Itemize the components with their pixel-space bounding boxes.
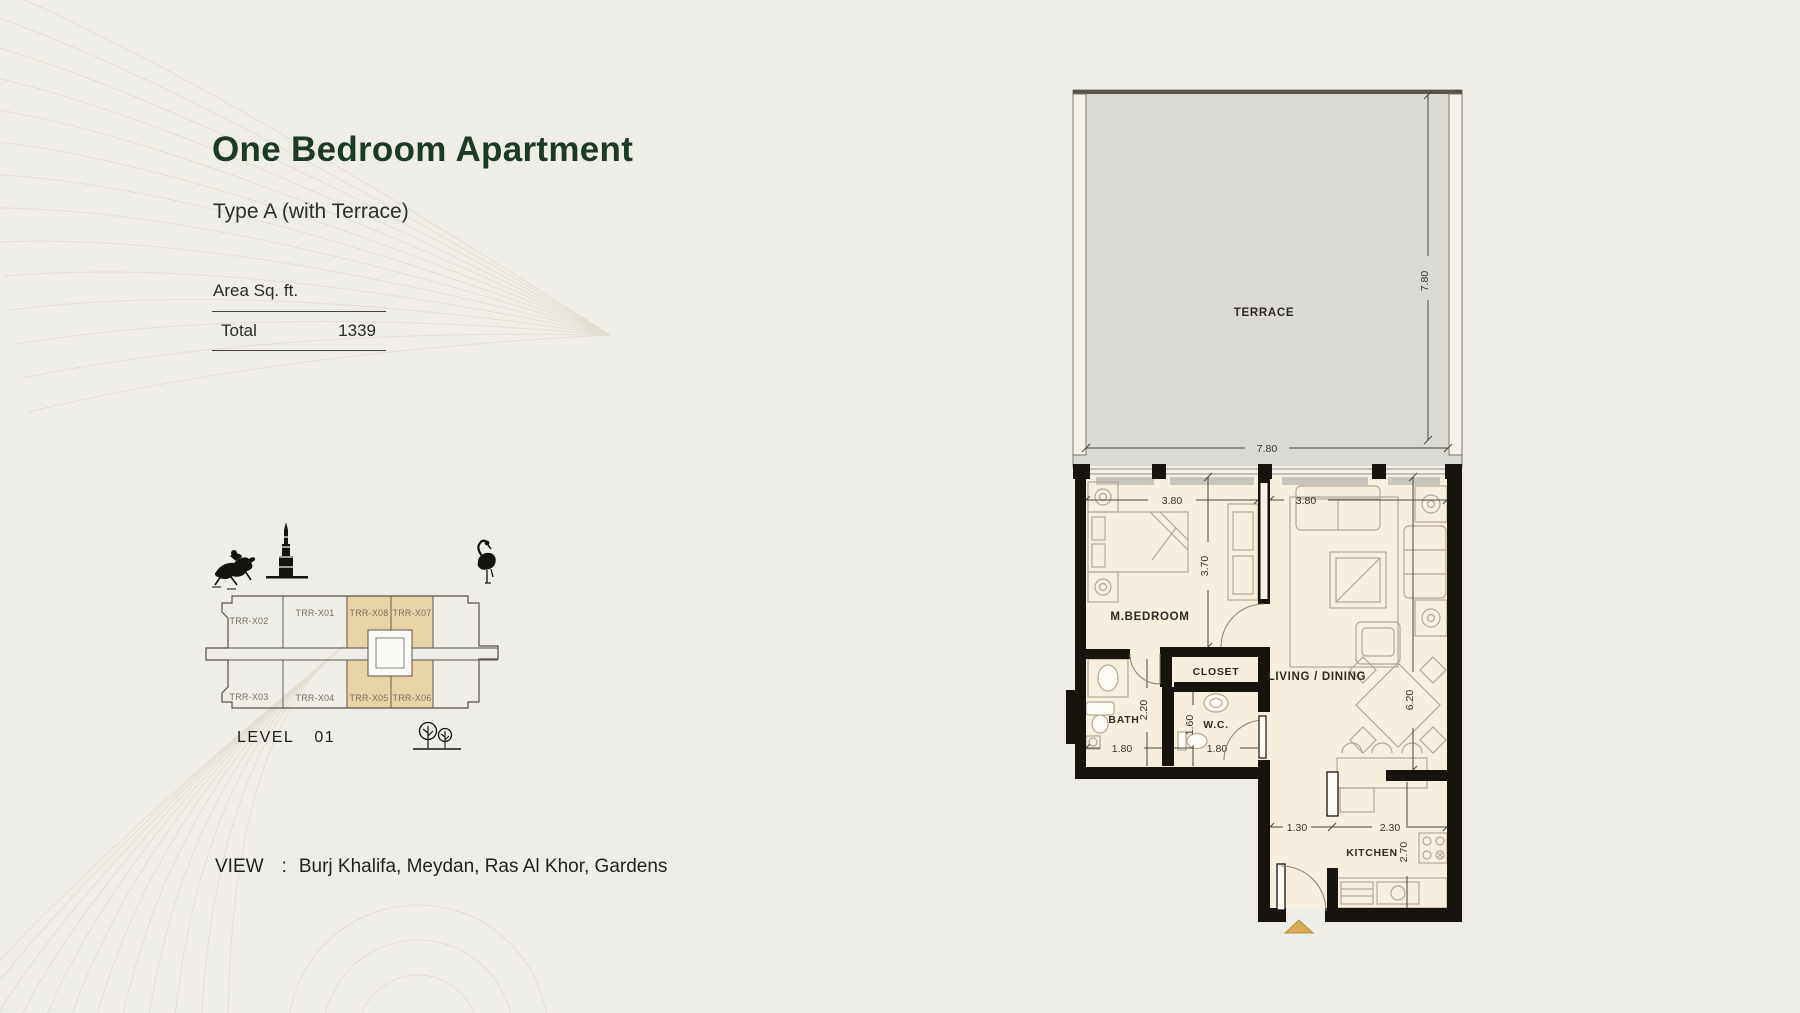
unit-label: TRR-X07 <box>393 608 432 618</box>
floor-right-block <box>1270 467 1447 908</box>
view-colon: : <box>282 856 287 877</box>
floorplan-page: TRR-X02 TRR-X01 TRR-X08 TRR-X07 TRR-X03 … <box>0 0 1800 1013</box>
dim-bedroom-depth: 3.70 <box>1199 556 1211 577</box>
leaf-decoration-bottom <box>0 645 345 1013</box>
level-value: 01 <box>314 729 335 746</box>
level-label: LEVEL <box>237 729 294 746</box>
dim-terrace-width: 7.80 <box>1257 443 1278 455</box>
area-row: Total 1339 <box>212 312 386 341</box>
unit-label: TRR-X04 <box>296 693 335 703</box>
rings-decoration <box>288 905 548 1013</box>
unit-label: TRR-X01 <box>296 608 335 618</box>
kitchen-door-leaf <box>1327 772 1338 816</box>
unit-label: TRR-X08 <box>350 608 389 618</box>
terrace-label: TERRACE <box>1234 307 1295 319</box>
pocket-door <box>1261 483 1268 599</box>
window-sill <box>1282 477 1368 485</box>
wc-door-leaf <box>1259 716 1266 758</box>
terrace-parapet <box>1073 90 1462 94</box>
flamingo-icon <box>478 541 496 583</box>
bedroom-label: M.BEDROOM <box>1110 611 1189 623</box>
unit-label: TRR-X03 <box>230 692 269 702</box>
gardens-trees-icon <box>413 723 461 750</box>
dim-living-depth: 6.20 <box>1404 690 1416 711</box>
table-rule <box>212 350 386 351</box>
area-row-value: 1339 <box>338 321 378 341</box>
dim-wc-depth: 1.60 <box>1184 715 1196 736</box>
dim-terrace-depth: 7.80 <box>1419 271 1431 292</box>
dim-bath-width: 1.80 <box>1112 743 1133 755</box>
level-indicator: LEVEL01 <box>237 729 335 747</box>
unit-label: TRR-X02 <box>230 616 269 626</box>
floor-plan: 7.80 7.80 3.80 3.80 3.70 6.20 2.20 <box>1066 90 1462 933</box>
unit-label: TRR-X06 <box>393 693 432 703</box>
wall-right <box>1447 467 1462 922</box>
view-value: Burj Khalifa, Meydan, Ras Al Khor, Garde… <box>299 856 668 877</box>
window-sill <box>1170 477 1254 485</box>
dim-kitchen-width: 2.30 <box>1380 822 1401 834</box>
closet-label: CLOSET <box>1193 666 1240 678</box>
bath-sink <box>1098 665 1118 691</box>
entry-door-leaf <box>1277 864 1285 910</box>
dim-bedroom-width: 3.80 <box>1162 495 1183 507</box>
window-sill <box>1388 477 1440 485</box>
dim-hall-width: 1.30 <box>1287 822 1308 834</box>
view-label: VIEW <box>215 856 264 877</box>
dim-kitchen-depth: 2.70 <box>1398 842 1410 863</box>
terrace-pilaster-right <box>1449 94 1462 455</box>
unit-label: TRR-X05 <box>350 693 389 703</box>
view-line: VIEW:Burj Khalifa, Meydan, Ras Al Khor, … <box>215 856 667 878</box>
bath-label: BATH <box>1108 714 1139 726</box>
area-table: Area Sq. ft. Total 1339 <box>212 281 386 351</box>
kitchen-label: KITCHEN <box>1346 847 1398 859</box>
area-row-label: Total <box>221 321 257 341</box>
page-subtitle: Type A (with Terrace) <box>213 200 409 224</box>
terrace-floor <box>1073 90 1462 467</box>
entry-marker <box>1285 920 1313 933</box>
dim-living-width: 3.80 <box>1296 495 1317 507</box>
key-plan: TRR-X02 TRR-X01 TRR-X08 TRR-X07 TRR-X03 … <box>206 522 498 749</box>
burj-khalifa-icon <box>266 522 308 579</box>
page-title: One Bedroom Apartment <box>212 130 633 170</box>
wc-label: W.C. <box>1203 719 1229 731</box>
key-plan-core <box>368 630 412 676</box>
window-sill <box>1096 477 1154 485</box>
wc-sink <box>1204 694 1228 712</box>
terrace-pilaster-left <box>1073 94 1086 455</box>
area-heading: Area Sq. ft. <box>212 281 386 301</box>
dim-bath-depth: 2.20 <box>1138 700 1150 721</box>
living-label: LIVING / DINING <box>1268 671 1367 683</box>
meydan-horse-icon <box>212 550 255 589</box>
